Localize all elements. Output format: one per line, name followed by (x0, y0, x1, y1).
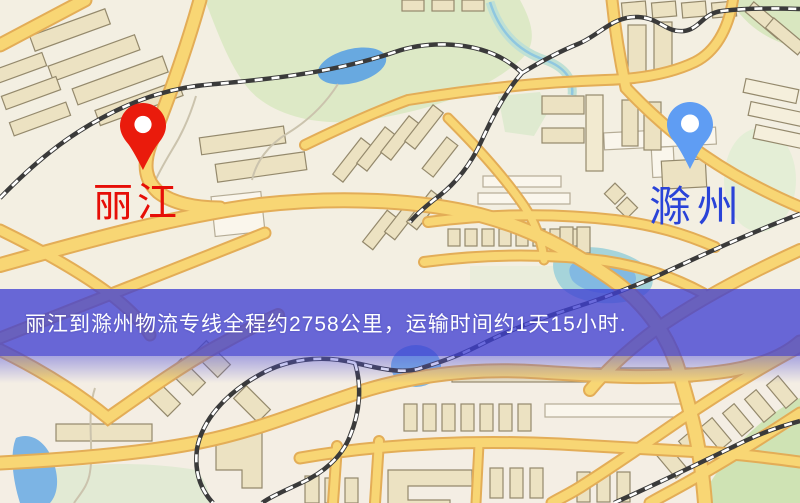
destination-label: 滁州 (649, 185, 745, 231)
route-info-banner: 丽江到滁州物流专线全程约2758公里，运输时间约1天15小时. (0, 289, 800, 356)
banner-bottom-fade (0, 356, 800, 383)
map-viewport[interactable]: 丽江 滁州 丽江到滁州物流专线全程约2758公里，运输时间约1天15小时. (0, 0, 800, 503)
origin-label: 丽江 (93, 180, 181, 225)
map-canvas[interactable]: 丽江 滁州 (0, 0, 800, 503)
route-info-text: 丽江到滁州物流专线全程约2758公里，运输时间约1天15小时. (0, 308, 627, 338)
